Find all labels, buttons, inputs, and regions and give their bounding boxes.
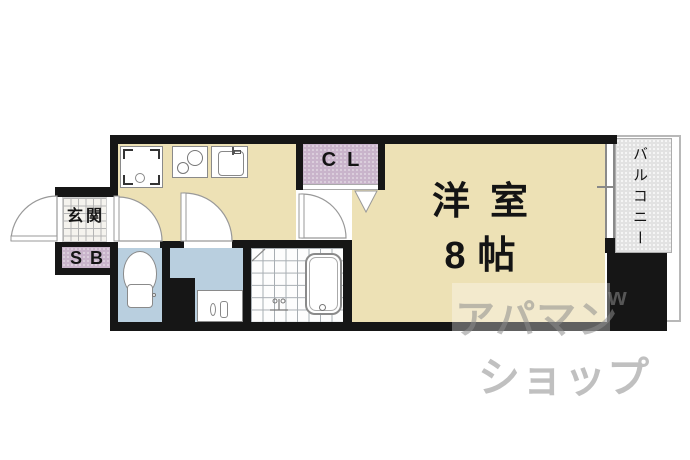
balcony-label: バルコニー	[632, 146, 650, 258]
washroom-door-swing	[184, 193, 232, 241]
washroom-door-leaf	[181, 193, 186, 241]
room-door-swing	[302, 194, 346, 238]
closet-label: CL	[303, 149, 378, 172]
bath-faucet-icon	[273, 299, 277, 303]
main-room-name: 洋室	[355, 170, 605, 225]
toilet-door-leaf	[114, 196, 119, 241]
entrance-door-leaf	[11, 236, 57, 241]
toilet-door-swing	[118, 197, 162, 241]
shoe-box-label: SB	[62, 248, 110, 269]
entrance-door-swing	[11, 196, 57, 240]
genkan-label: 玄関	[62, 202, 107, 226]
watermark-line2: ショップ	[478, 344, 650, 405]
bath-faucet-icon	[281, 299, 285, 303]
watermark-line1: アパマン	[455, 287, 618, 345]
watermark-mark: w	[608, 284, 628, 312]
room-door-leaf	[299, 194, 304, 238]
main-room-size: 8帖	[355, 224, 605, 279]
bath-door-line	[252, 249, 265, 261]
floor-plan: 玄関 SB CL 洋室 8帖 バルコニー アパマン w ショップ	[0, 0, 690, 460]
